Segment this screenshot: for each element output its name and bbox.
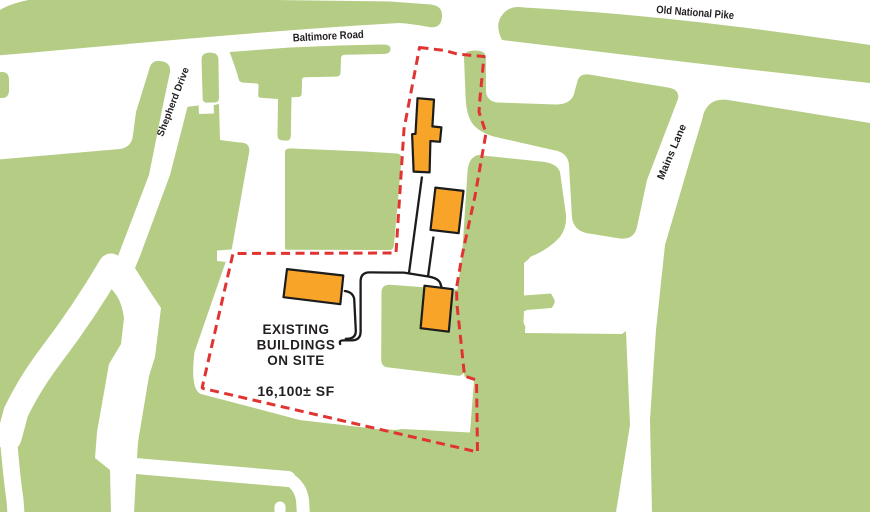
svg-text:EXISTING: EXISTING	[262, 322, 329, 337]
svg-text:BUILDINGS: BUILDINGS	[257, 338, 336, 353]
svg-text:16,100± SF: 16,100± SF	[257, 383, 334, 399]
svg-text:ON SITE: ON SITE	[267, 353, 325, 368]
